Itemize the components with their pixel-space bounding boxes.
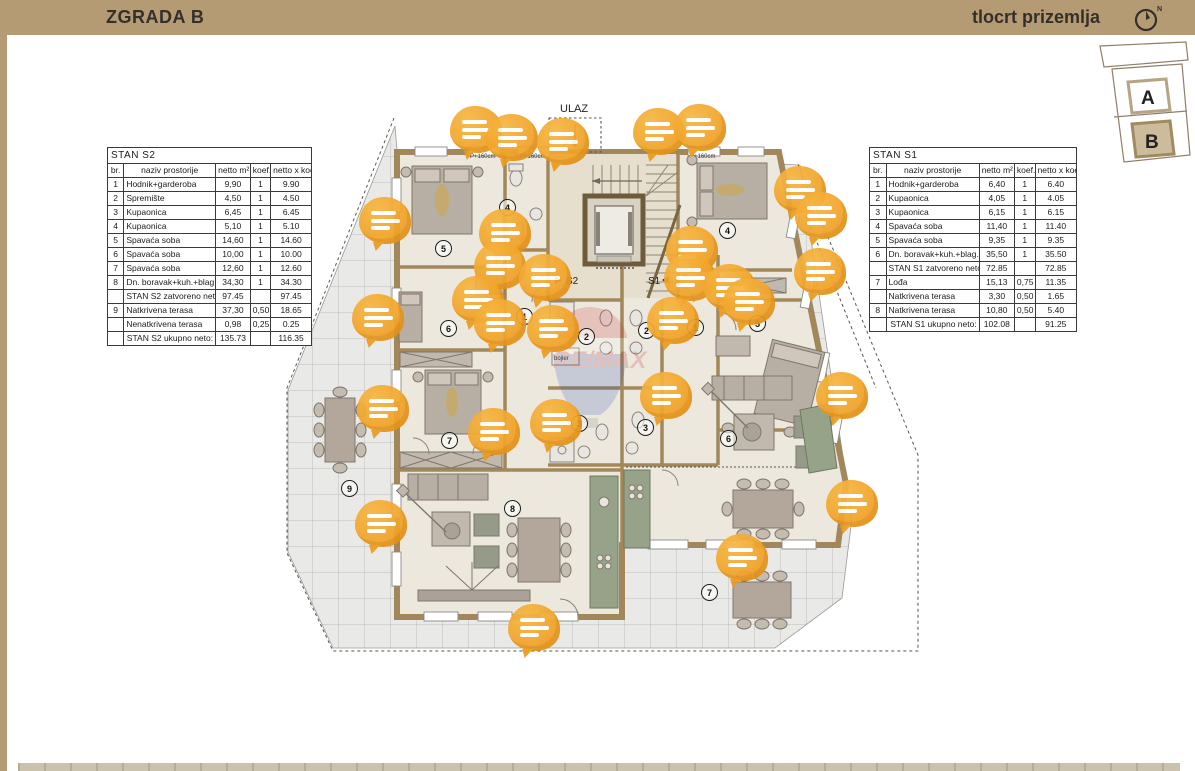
table-title: STAN S1 — [870, 148, 1077, 164]
table-row: 8Natkrivena terasa10,800,505.40 — [870, 304, 1077, 318]
photo-pin-marker[interactable] — [474, 299, 526, 346]
table-cell: 11,40 — [979, 220, 1014, 234]
table-cell: STAN S1 zatvoreno neto: — [886, 262, 979, 276]
column-header: netto m² — [216, 164, 251, 178]
table-cell: 1 — [1014, 234, 1035, 248]
table-row: 2Kupaonica4,0514.05 — [870, 192, 1077, 206]
table-cell: 1 — [1014, 178, 1035, 192]
table-row: 7Lođa15,130,7511.35 — [870, 276, 1077, 290]
table-row: 7Spavaća soba12,60112.60 — [108, 262, 312, 276]
table-cell: 0,25 — [250, 318, 270, 332]
column-header: netto m² — [979, 164, 1014, 178]
table-row: 6Dn. boravak+kuh.+blag.35,50135.50 — [870, 248, 1077, 262]
table-cell: Natkrivena terasa — [886, 290, 979, 304]
table-cell: 7 — [108, 262, 124, 276]
table-cell: 34,30 — [216, 276, 251, 290]
table-cell: 9,35 — [979, 234, 1014, 248]
table-cell: Spavaća soba — [886, 234, 979, 248]
table-cell: STAN S2 zatvoreno neto: — [124, 290, 216, 304]
table-cell — [250, 290, 270, 304]
photo-pin-marker[interactable] — [647, 297, 699, 344]
photo-pin-marker[interactable] — [508, 604, 560, 651]
site-diagram: A B — [1092, 40, 1192, 165]
table-cell: 10,80 — [979, 304, 1014, 318]
table-cell: 3,30 — [979, 290, 1014, 304]
table-cell: 6.15 — [1035, 206, 1076, 220]
table-cell: 4 — [108, 220, 124, 234]
table-cell: 6,40 — [979, 178, 1014, 192]
table-cell: Lođa — [886, 276, 979, 290]
table-row: 3Kupaonica6,4516.45 — [108, 206, 312, 220]
floor-plan: ULAZ S2 S1 P+160cm P+160cm P+160cm — [0, 0, 1195, 771]
table-cell: 6 — [870, 248, 887, 262]
table-cell — [108, 318, 124, 332]
photo-pin-marker[interactable] — [794, 248, 846, 295]
photo-pin-marker[interactable] — [357, 385, 409, 432]
table-row: 4Kupaonica5,1015.10 — [108, 220, 312, 234]
table-row: 2Spremište4,5014.50 — [108, 192, 312, 206]
photo-pin-marker[interactable] — [355, 500, 407, 547]
table-cell — [108, 332, 124, 346]
table-cell: Spavaća soba — [124, 262, 216, 276]
table-row: 1Hodnik+garderoba6,4016.40 — [870, 178, 1077, 192]
table-cell: 1 — [1014, 192, 1035, 206]
table-row: Nenatkrivena terasa0,980,250.25 — [108, 318, 312, 332]
photo-pin-marker[interactable] — [527, 305, 579, 352]
table-cell: Kupaonica — [886, 192, 979, 206]
photo-pin-marker[interactable] — [640, 372, 692, 419]
table-cell: 10,00 — [216, 248, 251, 262]
table-title: STAN S2 — [108, 148, 312, 164]
table-cell: 6 — [108, 248, 124, 262]
photo-pin-marker[interactable] — [468, 408, 520, 455]
table-cell: 0,50 — [1014, 304, 1035, 318]
table-cell — [1014, 318, 1035, 332]
room-number-circle: 9 — [341, 480, 358, 497]
room-number-circle: 7 — [441, 432, 458, 449]
table-cell: 1 — [1014, 220, 1035, 234]
table-cell: 1 — [108, 178, 124, 192]
column-header: netto x koef. m² — [271, 164, 312, 178]
room-number-circle: 6 — [440, 320, 457, 337]
table-cell: 11.35 — [1035, 276, 1076, 290]
table-cell: Kupaonica — [886, 206, 979, 220]
table-cell: 1 — [1014, 206, 1035, 220]
building-a-label: A — [1141, 88, 1155, 109]
photo-pin-marker[interactable] — [716, 534, 768, 581]
table-cell: Dn. boravak+kuh.+blag. — [886, 248, 979, 262]
table-cell: STAN S2 ukupno neto: — [124, 332, 216, 346]
table-cell: 135.73 — [216, 332, 251, 346]
table-cell: 4.05 — [1035, 192, 1076, 206]
table-cell: 14,60 — [216, 234, 251, 248]
table-cell: 0,50 — [1014, 290, 1035, 304]
table-row: 8Dn. boravak+kuh.+blag.34,30134.30 — [108, 276, 312, 290]
table-cell: 1 — [1014, 248, 1035, 262]
table-cell: 9.90 — [271, 178, 312, 192]
table-cell: 0.25 — [271, 318, 312, 332]
table-cell: 102.08 — [979, 318, 1014, 332]
elevator — [585, 196, 643, 268]
table-cell: 6,15 — [979, 206, 1014, 220]
table-cell: 6.45 — [271, 206, 312, 220]
photo-pin-marker[interactable] — [826, 480, 878, 527]
table-cell: 3 — [870, 206, 887, 220]
table-cell: 91.25 — [1035, 318, 1076, 332]
table-row: STAN S2 ukupno neto:135.73116.35 — [108, 332, 312, 346]
room-number-circle: 6 — [720, 430, 737, 447]
column-header: koef. — [1014, 164, 1035, 178]
column-header: br. — [108, 164, 124, 178]
table-cell: Spavaća soba — [886, 220, 979, 234]
table-cell: 9 — [108, 304, 124, 318]
table-row: 9Natkrivena terasa37,300,5018.65 — [108, 304, 312, 318]
room-number-circle: 2 — [578, 328, 595, 345]
table-cell: 1 — [250, 192, 270, 206]
table-cell: 11.40 — [1035, 220, 1076, 234]
table-cell: 5.10 — [271, 220, 312, 234]
svg-text:P+160cm: P+160cm — [470, 154, 496, 160]
table-cell: 8 — [870, 304, 887, 318]
table-cell: 9,90 — [216, 178, 251, 192]
table-cell: 116.35 — [271, 332, 312, 346]
table-cell: 1 — [250, 178, 270, 192]
table-cell: 6,45 — [216, 206, 251, 220]
table-cell: 9.35 — [1035, 234, 1076, 248]
photo-pin-marker[interactable] — [486, 114, 538, 161]
table-cell: 34.30 — [271, 276, 312, 290]
table-row: STAN S1 ukupno neto:102.0891.25 — [870, 318, 1077, 332]
table-cell: Kupaonica — [124, 206, 216, 220]
table-row: 6Spavaća soba10,00110.00 — [108, 248, 312, 262]
table-cell — [250, 332, 270, 346]
table-row: 3Kupaonica6,1516.15 — [870, 206, 1077, 220]
photo-pin-marker[interactable] — [723, 278, 775, 325]
table-cell: 1 — [250, 248, 270, 262]
table-cell: 1.65 — [1035, 290, 1076, 304]
table-cell: 8 — [108, 276, 124, 290]
photo-pin-marker[interactable] — [795, 192, 847, 239]
table-cell: 1 — [250, 220, 270, 234]
table-cell: 2 — [108, 192, 124, 206]
column-header: naziv prostorije — [124, 164, 216, 178]
entrance-label: ULAZ — [560, 103, 588, 115]
table-cell: Spavaća soba — [124, 234, 216, 248]
table-cell — [108, 290, 124, 304]
table-row: 1Hodnik+garderoba9,9019.90 — [108, 178, 312, 192]
table-cell: 4,50 — [216, 192, 251, 206]
photo-pin-marker[interactable] — [537, 118, 589, 165]
table-cell: 35,50 — [979, 248, 1014, 262]
photo-pin-marker[interactable] — [519, 254, 571, 301]
table-cell: 72.85 — [979, 262, 1014, 276]
table-cell: STAN S1 ukupno neto: — [886, 318, 979, 332]
table-cell: Spavaća soba — [124, 248, 216, 262]
photo-pin-marker[interactable] — [352, 294, 404, 341]
table-cell — [870, 290, 887, 304]
table-cell: Dn. boravak+kuh.+blag. — [124, 276, 216, 290]
table-cell: 97.45 — [271, 290, 312, 304]
table-cell: 97.45 — [216, 290, 251, 304]
table-cell — [870, 318, 887, 332]
table-cell: 0,50 — [250, 304, 270, 318]
column-header: br. — [870, 164, 887, 178]
watermark-text: RE/MAX — [553, 347, 648, 374]
table-row: Natkrivena terasa3,300,501.65 — [870, 290, 1077, 304]
table-cell: 18.65 — [271, 304, 312, 318]
photo-pin-marker[interactable] — [674, 104, 726, 151]
table-cell: Natkrivena terasa — [124, 304, 216, 318]
table-cell: Hodnik+garderoba — [124, 178, 216, 192]
table-cell: 0,98 — [216, 318, 251, 332]
table-cell: 3 — [108, 206, 124, 220]
table-cell: Nenatkrivena terasa — [124, 318, 216, 332]
table-cell: 12,60 — [216, 262, 251, 276]
table-cell: 14.60 — [271, 234, 312, 248]
area-table: STAN S1br.naziv prostorijenetto m²koef.n… — [869, 147, 1077, 332]
table-row: 5Spavaća soba14,60114.60 — [108, 234, 312, 248]
table-cell: 4,05 — [979, 192, 1014, 206]
table-cell: 5 — [870, 234, 887, 248]
table-cell: 1 — [250, 206, 270, 220]
room-number-circle: 8 — [504, 500, 521, 517]
room-number-circle: 5 — [435, 240, 452, 257]
table-cell: 0,75 — [1014, 276, 1035, 290]
column-header: koef. — [250, 164, 270, 178]
room-number-circle: 4 — [719, 222, 736, 239]
door-label-s1: S1 — [648, 276, 661, 287]
photo-pin-marker[interactable] — [816, 372, 868, 419]
table-cell — [1014, 262, 1035, 276]
floorplan-page: ZGRADA B tlocrt prizemlja N — [0, 0, 1195, 771]
column-header: netto x koef. m² — [1035, 164, 1076, 178]
table-cell: 1 — [250, 276, 270, 290]
table-cell: 72.85 — [1035, 262, 1076, 276]
table-cell: Natkrivena terasa — [886, 304, 979, 318]
table-cell: 12.60 — [271, 262, 312, 276]
table-cell: 37,30 — [216, 304, 251, 318]
room-number-circle: 7 — [701, 584, 718, 601]
table-cell: 5 — [108, 234, 124, 248]
table-cell: 5,10 — [216, 220, 251, 234]
area-table: STAN S2br.naziv prostorijenetto m²koef.n… — [107, 147, 312, 346]
table-row: STAN S2 zatvoreno neto:97.4597.45 — [108, 290, 312, 304]
table-cell: 4.50 — [271, 192, 312, 206]
column-header: naziv prostorije — [886, 164, 979, 178]
table-cell: Kupaonica — [124, 220, 216, 234]
table-cell: 2 — [870, 192, 887, 206]
table-cell: 1 — [870, 178, 887, 192]
table-cell: Spremište — [124, 192, 216, 206]
table-cell: 1 — [250, 234, 270, 248]
photo-pin-marker[interactable] — [530, 399, 582, 446]
table-cell: 35.50 — [1035, 248, 1076, 262]
table-cell: 6.40 — [1035, 178, 1076, 192]
table-row: 4Spavaća soba11,40111.40 — [870, 220, 1077, 234]
photo-pin-marker[interactable] — [359, 197, 411, 244]
room-number-circle: 3 — [637, 419, 654, 436]
table-cell: 5.40 — [1035, 304, 1076, 318]
table-cell: 7 — [870, 276, 887, 290]
table-cell: Hodnik+garderoba — [886, 178, 979, 192]
table-cell — [870, 262, 887, 276]
table-cell: 1 — [250, 262, 270, 276]
table-cell: 4 — [870, 220, 887, 234]
table-cell: 10.00 — [271, 248, 312, 262]
building-b-label: B — [1145, 132, 1159, 153]
table-cell: 15,13 — [979, 276, 1014, 290]
table-row: STAN S1 zatvoreno neto:72.8572.85 — [870, 262, 1077, 276]
table-row: 5Spavaća soba9,3519.35 — [870, 234, 1077, 248]
